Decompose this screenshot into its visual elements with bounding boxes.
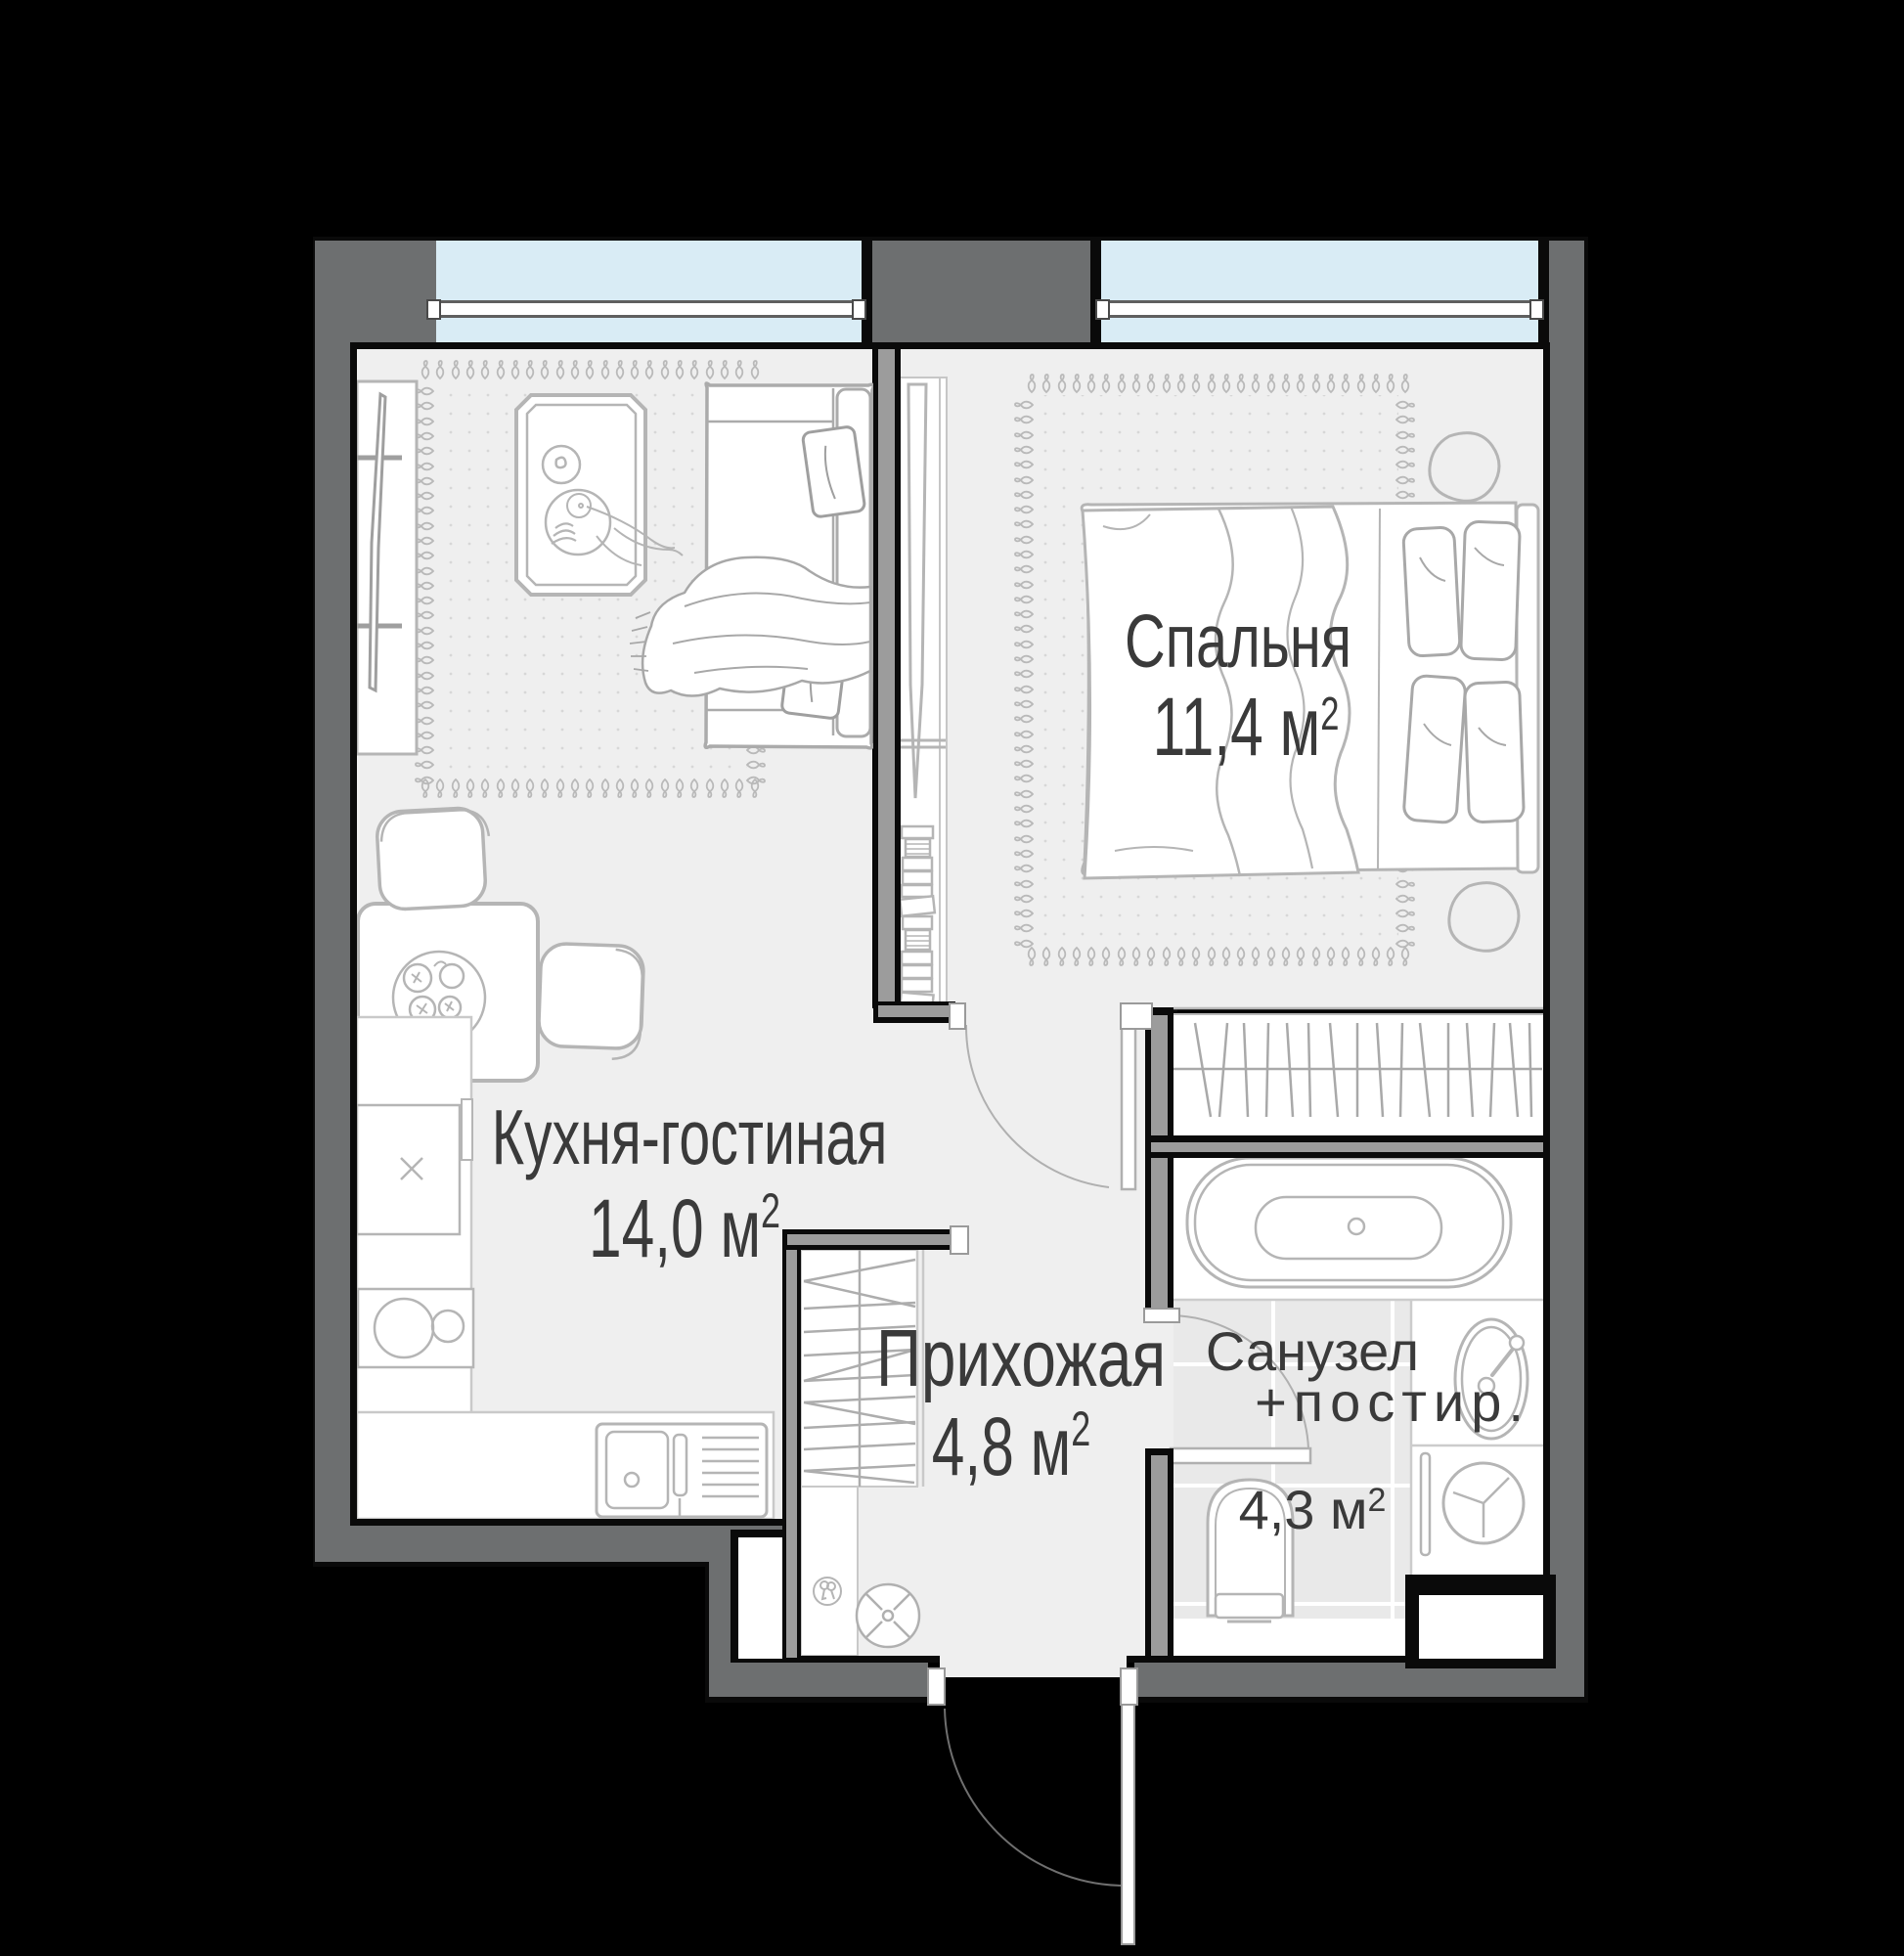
svg-text:4,8 м2: 4,8 м2: [932, 1400, 1090, 1492]
svg-text:4,3 м2: 4,3 м2: [1239, 1479, 1387, 1540]
svg-text:Прихожая: Прихожая: [876, 1312, 1166, 1403]
svg-text:Спальня: Спальня: [1125, 600, 1351, 684]
svg-text:Кухня-гостиная: Кухня-гостиная: [492, 1093, 888, 1181]
svg-text:+постир.: +постир.: [1255, 1371, 1530, 1433]
svg-text:14,0 м2: 14,0 м2: [589, 1182, 780, 1274]
svg-text:11,4 м2: 11,4 м2: [1153, 681, 1340, 773]
